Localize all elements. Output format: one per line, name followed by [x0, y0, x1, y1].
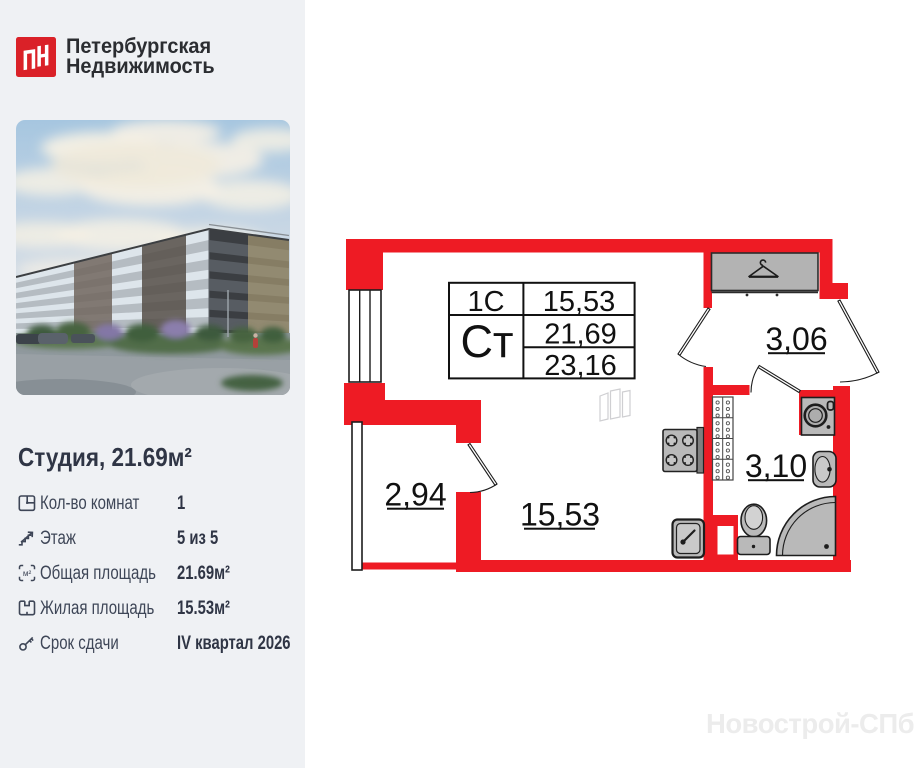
svg-text:м²: м²	[23, 569, 32, 578]
svg-text:15,53: 15,53	[520, 497, 600, 533]
svg-text:3,10: 3,10	[745, 448, 807, 484]
svg-text:23,16: 23,16	[544, 350, 617, 382]
svg-text:21,69: 21,69	[544, 319, 617, 351]
svg-text:2,94: 2,94	[384, 477, 446, 513]
svg-text:15,53: 15,53	[543, 286, 616, 318]
svg-text:Новострой-СПб: Новострой-СПб	[706, 708, 914, 739]
svg-text:1С: 1С	[467, 286, 504, 318]
svg-text:3,06: 3,06	[765, 321, 827, 357]
svg-text:Ст: Ст	[460, 316, 513, 367]
